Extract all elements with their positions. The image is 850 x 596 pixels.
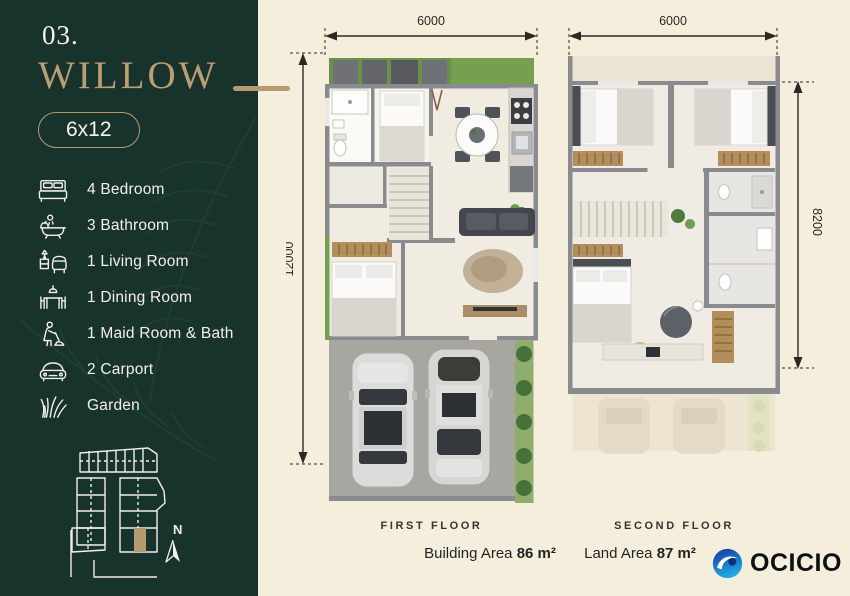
svg-text:6000: 6000 [417, 14, 445, 28]
amenity-item: 4 Bedroom [34, 176, 234, 204]
amenity-item: 2 Carport [34, 356, 234, 384]
land-area-label: Land Area [584, 545, 652, 562]
amenity-label: 1 Dining Room [87, 289, 192, 307]
first-floor-plan [325, 58, 538, 505]
svg-text:12000: 12000 [286, 242, 296, 277]
amenities-list: 4 Bedroom 3 Bathroom [34, 176, 234, 428]
first-floor-caption: FIRST FLOOR [325, 520, 538, 532]
car-icon [34, 356, 72, 384]
svg-text:8200: 8200 [810, 208, 824, 236]
car-left [349, 353, 417, 487]
compass-north-icon [166, 540, 180, 562]
plan-title: WILLOW [38, 56, 218, 95]
size-badge: 6x12 [38, 112, 140, 148]
building-area-value: 86 m² [517, 545, 556, 562]
title-dash [233, 86, 290, 91]
armchair-icon [34, 248, 72, 276]
logo-mark-icon [712, 548, 743, 579]
grass-icon [34, 392, 72, 420]
logo: OCICIO [712, 548, 842, 579]
dimension-width-first: 6000 [318, 12, 544, 56]
second-floor-plan [568, 56, 780, 456]
logo-text: OCICIO [750, 549, 842, 578]
amenity-item: Garden [34, 392, 234, 420]
sidebar: 03. WILLOW 6x12 4 Bedroom [0, 0, 258, 596]
amenity-label: 3 Bathroom [87, 217, 169, 235]
plan-number: 03. [42, 20, 79, 51]
amenity-item: 1 Living Room [34, 248, 234, 276]
svg-text:6000: 6000 [659, 14, 687, 28]
compass-north-label: N [173, 522, 182, 537]
dining-table-icon [34, 284, 72, 312]
amenity-item: 3 Bathroom [34, 212, 234, 240]
site-plan-map: N [60, 444, 230, 592]
amenity-label: Garden [87, 397, 140, 415]
dimension-height-second: 8200 [782, 70, 826, 382]
land-area-value: 87 m² [657, 545, 696, 562]
amenity-label: 2 Carport [87, 361, 153, 379]
second-floor-caption: SECOND FLOOR [568, 520, 780, 532]
dimension-height-first: 12000 [286, 46, 324, 472]
maid-icon [34, 320, 72, 348]
dimension-width-second: 6000 [560, 12, 786, 56]
amenity-label: 1 Living Room [87, 253, 189, 271]
bathtub-icon [34, 212, 72, 240]
amenity-label: 1 Maid Room & Bath [87, 325, 234, 343]
highlighted-lot [134, 528, 146, 552]
building-area: Building Area 86 m² [400, 545, 580, 562]
building-area-label: Building Area [424, 545, 512, 562]
land-area: Land Area 87 m² [560, 545, 720, 562]
bed-icon [34, 176, 72, 204]
amenity-label: 4 Bedroom [87, 181, 165, 199]
amenity-item: 1 Dining Room [34, 284, 234, 312]
page: 03. WILLOW 6x12 4 Bedroom [0, 0, 850, 596]
car-right [425, 349, 493, 485]
amenity-item: 1 Maid Room & Bath [34, 320, 234, 348]
